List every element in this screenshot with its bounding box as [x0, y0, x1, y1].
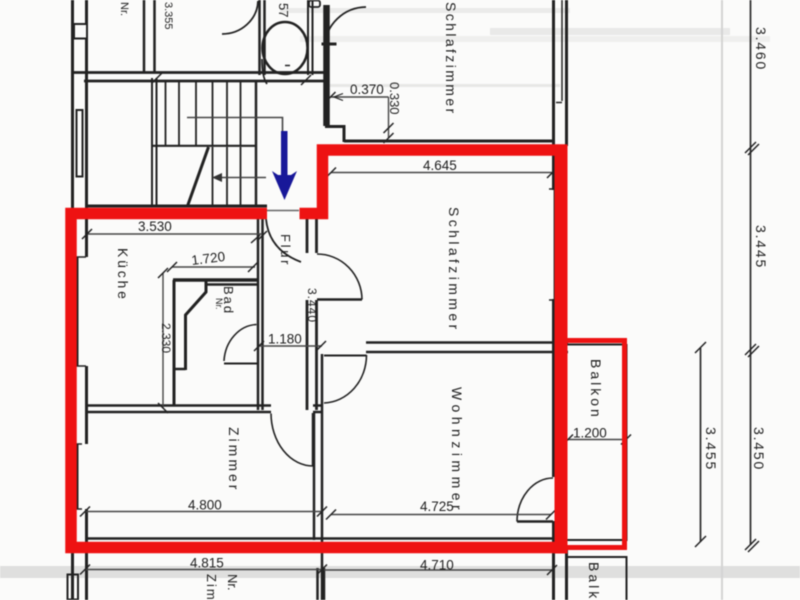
svg-text:0.330: 0.330: [387, 82, 402, 115]
svg-text:3.455: 3.455: [703, 427, 719, 471]
svg-text:Küche: Küche: [115, 248, 131, 302]
svg-text:Schlafzimmer: Schlafzimmer: [443, 2, 459, 116]
svg-text:3.530: 3.530: [138, 219, 172, 234]
svg-text:3.355: 3.355: [162, 2, 174, 30]
svg-text:Zimmer: Zimmer: [226, 427, 242, 492]
svg-text:4.725: 4.725: [420, 499, 454, 514]
svg-text:Balkon: Balkon: [588, 359, 604, 420]
svg-text:3.460: 3.460: [753, 27, 769, 71]
svg-text:3.450: 3.450: [751, 427, 767, 471]
svg-text:Nr.: Nr.: [225, 574, 240, 591]
svg-text:57: 57: [276, 3, 291, 17]
svg-text:0.370: 0.370: [350, 82, 384, 97]
svg-text:Schlafzimmer: Schlafzimmer: [446, 207, 462, 333]
svg-text:4.815: 4.815: [190, 556, 224, 571]
svg-text:Balkon: Balkon: [586, 562, 602, 600]
svg-text:4.710: 4.710: [420, 558, 454, 573]
svg-text:Zimmer: Zimmer: [204, 574, 219, 600]
svg-text:1.200: 1.200: [573, 426, 607, 441]
svg-text:1.180: 1.180: [268, 332, 302, 347]
svg-text:3.440: 3.440: [305, 288, 319, 323]
svg-text:Nr.: Nr.: [214, 298, 224, 310]
svg-text:Wohnzimmer: Wohnzimmer: [449, 387, 465, 514]
svg-text:2.330: 2.330: [159, 323, 173, 353]
svg-text:3.445: 3.445: [753, 225, 769, 269]
svg-text:4.800: 4.800: [188, 498, 222, 513]
svg-text:Flur: Flur: [278, 234, 293, 267]
svg-text:Nr.: Nr.: [118, 2, 130, 16]
svg-text:4.645: 4.645: [423, 158, 457, 173]
